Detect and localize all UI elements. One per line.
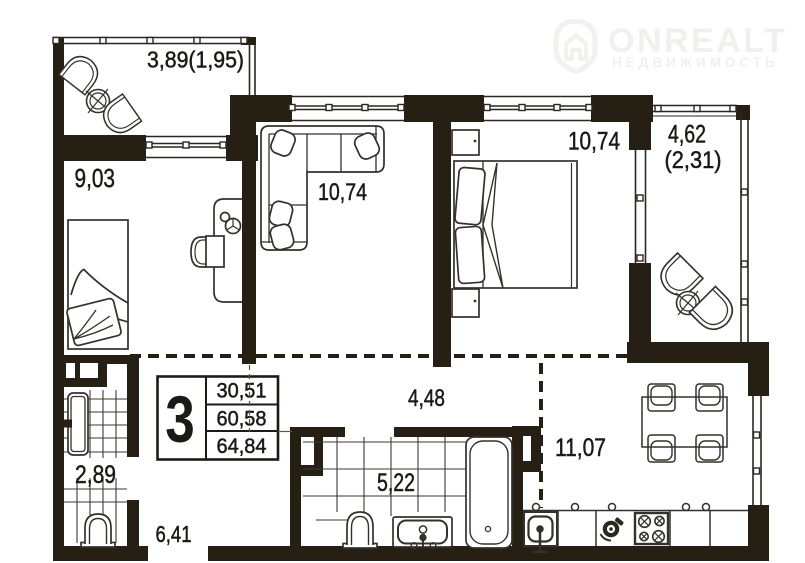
- svg-text:3,89(1,95): 3,89(1,95): [147, 47, 244, 73]
- svg-text:2,89: 2,89: [75, 461, 116, 489]
- svg-text:10,74: 10,74: [568, 128, 620, 156]
- svg-text:(2,31): (2,31): [665, 147, 722, 174]
- svg-text:5,22: 5,22: [377, 469, 415, 497]
- svg-text:3: 3: [165, 382, 195, 456]
- svg-text:4,48: 4,48: [408, 385, 445, 412]
- svg-text:НЕДВИЖИМОСТЬ: НЕДВИЖИМОСТЬ: [612, 55, 779, 70]
- svg-text:9,03: 9,03: [75, 165, 116, 193]
- svg-text:11,07: 11,07: [555, 434, 606, 462]
- svg-text:4,62: 4,62: [668, 121, 706, 149]
- svg-text:30,51: 30,51: [217, 380, 267, 403]
- svg-text:64,84: 64,84: [217, 435, 267, 458]
- svg-text:6,41: 6,41: [156, 521, 192, 547]
- svg-text:60,58: 60,58: [217, 408, 267, 431]
- svg-text:10,74: 10,74: [318, 179, 367, 206]
